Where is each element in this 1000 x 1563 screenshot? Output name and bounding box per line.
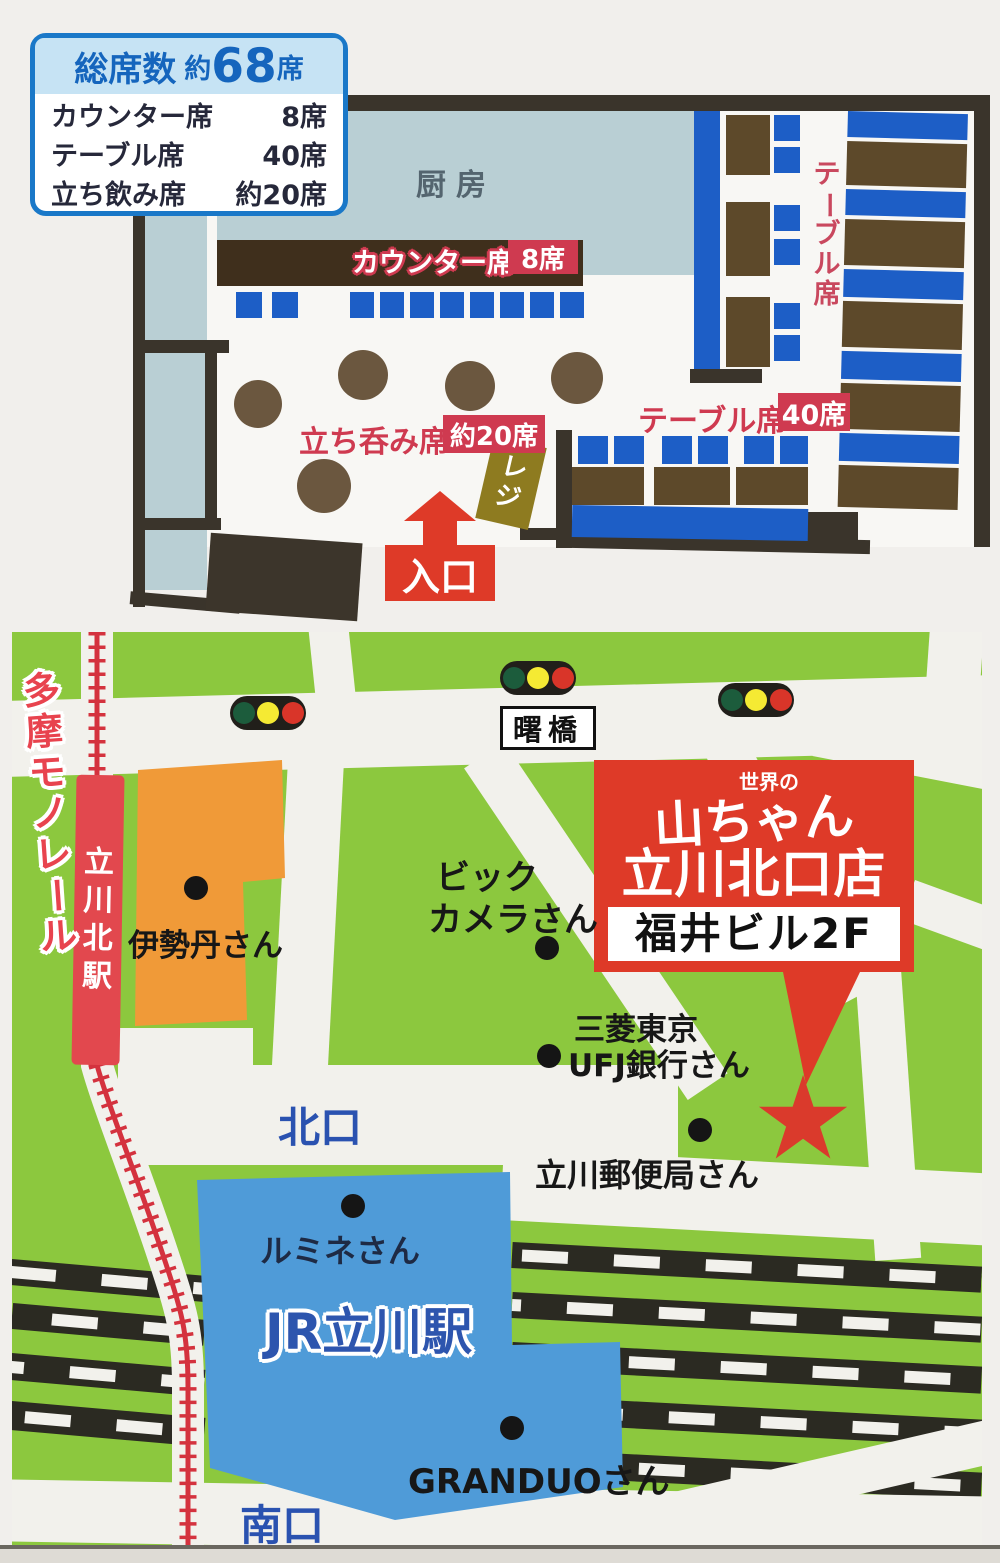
- flyer-page: レジ 入口 厨房 カウンター席 8席 立ち呑み席 約20席 テーブル席 40席 …: [0, 0, 1000, 1563]
- long-bench-vertical: [694, 111, 720, 369]
- counter-stool: [410, 292, 434, 318]
- chair: [698, 436, 728, 464]
- kitchen-label: 厨房: [380, 160, 532, 204]
- red-light: [770, 689, 792, 711]
- chair: [744, 436, 774, 464]
- seat-type-label: カウンター席: [51, 98, 213, 137]
- building-dot-granduo: [500, 1416, 524, 1440]
- green-light: [233, 702, 255, 724]
- counter-seats-label: カウンター席: [352, 241, 514, 280]
- wall-inner-left: [205, 345, 217, 525]
- wall-left: [133, 193, 145, 607]
- entrance-label: 入口: [402, 546, 478, 601]
- yellow-light: [527, 667, 549, 689]
- seat-type-value: 8席: [281, 98, 327, 137]
- granduo-label: GRANDUOさん: [408, 1454, 670, 1503]
- corner-table: [205, 533, 362, 621]
- booth-table: [846, 141, 967, 188]
- building-dot-isetan: [184, 876, 208, 900]
- right-booth-rows: [838, 111, 968, 514]
- building-dot-lumine: [341, 1194, 365, 1218]
- dining-table: [654, 467, 730, 505]
- shop-sign: 世界の 山ちゃん 立川北口店 福井ビル2F: [594, 760, 914, 972]
- chair: [662, 436, 692, 464]
- seat-info-row: テーブル席 40席: [51, 137, 327, 176]
- counter-stool: [440, 292, 464, 318]
- table-seats-count: 40席: [778, 393, 850, 431]
- counter-stool: [470, 292, 494, 318]
- post-office-label: 立川郵便局さん: [535, 1150, 759, 1196]
- store-name-label: 立川北口店: [594, 847, 914, 903]
- seat-type-value: 40席: [262, 137, 327, 176]
- yellow-light: [257, 702, 279, 724]
- isetan-label: 伊勢丹さん: [128, 920, 283, 965]
- building-dot-post-office: [688, 1118, 712, 1142]
- red-light: [552, 667, 574, 689]
- wall-corner-block: [806, 512, 858, 548]
- total-seats-label: 総席数: [74, 42, 176, 91]
- booth-bench: [839, 433, 960, 464]
- building-dot-bank: [537, 1044, 561, 1068]
- standing-table: [551, 352, 603, 404]
- counter-stool: [500, 292, 524, 318]
- counter-stool: [380, 292, 404, 318]
- access-map: 立川北駅 世界の 山ちゃん 立川北口店 福井ビル2F ★ 曙橋: [12, 632, 982, 1545]
- seat-info-rows: カウンター席 8席 テーブル席 40席 立ち飲み席 約20席: [35, 94, 343, 215]
- photo-edge-shadow: [0, 1549, 1000, 1563]
- jr-station-label: JR立川駅: [265, 1292, 472, 1364]
- seat-info-header: 総席数 約 68 席: [35, 38, 343, 94]
- chair: [774, 239, 800, 265]
- seat-info-row: カウンター席 8席: [51, 98, 327, 137]
- yellow-light: [745, 689, 767, 711]
- counter-stool: [236, 292, 262, 318]
- counter-stool: [530, 292, 554, 318]
- left-back-rooms: [145, 193, 207, 590]
- traffic-light: [500, 661, 576, 695]
- booth-table: [840, 383, 961, 432]
- green-light: [721, 689, 743, 711]
- wall-right: [974, 95, 990, 547]
- tachikawa-kita-station-label: 立川北駅: [82, 844, 115, 997]
- standing-table: [234, 380, 282, 428]
- dining-table: [572, 467, 644, 505]
- counter-stool: [350, 292, 374, 318]
- register-label: レジ: [492, 451, 531, 515]
- standing-table: [445, 361, 495, 411]
- counter-stool: [560, 292, 584, 318]
- red-light: [282, 702, 304, 724]
- chair: [774, 303, 800, 329]
- booth-table: [838, 465, 959, 510]
- total-seats-count: 68: [211, 39, 276, 94]
- standing-seats-label: 立ち呑み席: [299, 417, 449, 461]
- dining-table: [726, 297, 770, 367]
- booth-table: [842, 301, 963, 350]
- north-exit-label: 北口: [278, 1094, 362, 1155]
- standing-table: [297, 459, 351, 513]
- standing-table: [338, 350, 388, 400]
- seat-info-row: 立ち飲み席 約20席: [51, 176, 327, 215]
- south-exit-label: 南口: [240, 1492, 324, 1545]
- booth-bench: [841, 351, 962, 382]
- long-bench-bottom: [572, 505, 809, 541]
- counter-stool: [272, 292, 298, 318]
- building-floor-label: 福井ビル2F: [608, 907, 900, 961]
- seat-type-label: 立ち飲み席: [51, 176, 186, 215]
- table-seats-side-label: テーブル席: [810, 160, 844, 310]
- seat-info-box: 総席数 約 68 席 カウンター席 8席 テーブル席 40席 立ち飲み席 約20…: [30, 33, 348, 216]
- seat-type-label: テーブル席: [51, 137, 184, 176]
- total-seats-unit: 席: [277, 47, 304, 86]
- dining-table: [726, 115, 770, 175]
- chair: [780, 436, 808, 464]
- chair: [774, 147, 800, 173]
- entrance-box: 入口: [385, 545, 495, 601]
- traffic-light: [230, 696, 306, 730]
- chair: [774, 115, 800, 141]
- biccamera-label-line2: カメラさん: [428, 892, 598, 941]
- total-seats-approx: 約: [184, 47, 211, 86]
- akebono-bridge-label: 曙橋: [500, 706, 596, 750]
- wall-bench-foot: [690, 369, 762, 383]
- entrance-arrow-shaft: [423, 519, 457, 547]
- standing-seats-count: 約20席: [443, 415, 545, 453]
- dining-table: [726, 202, 770, 276]
- chair: [774, 205, 800, 231]
- traffic-light: [718, 683, 794, 717]
- counter-seats-count: 8席: [508, 240, 578, 274]
- dining-table: [736, 467, 808, 505]
- table-seats-label: テーブル席: [638, 396, 786, 440]
- booth-bench: [845, 189, 966, 218]
- chair: [614, 436, 644, 464]
- bank-label-line2: UFJ銀行さん: [568, 1040, 750, 1085]
- kitchen-area-extension: [583, 243, 695, 275]
- green-light: [503, 667, 525, 689]
- booth-table: [844, 219, 965, 268]
- chair: [578, 436, 608, 464]
- lumine-label: ルミネさん: [260, 1226, 420, 1272]
- booth-bench: [847, 111, 968, 140]
- chair: [774, 335, 800, 361]
- seat-type-value: 約20席: [235, 176, 327, 215]
- booth-bench: [843, 269, 964, 300]
